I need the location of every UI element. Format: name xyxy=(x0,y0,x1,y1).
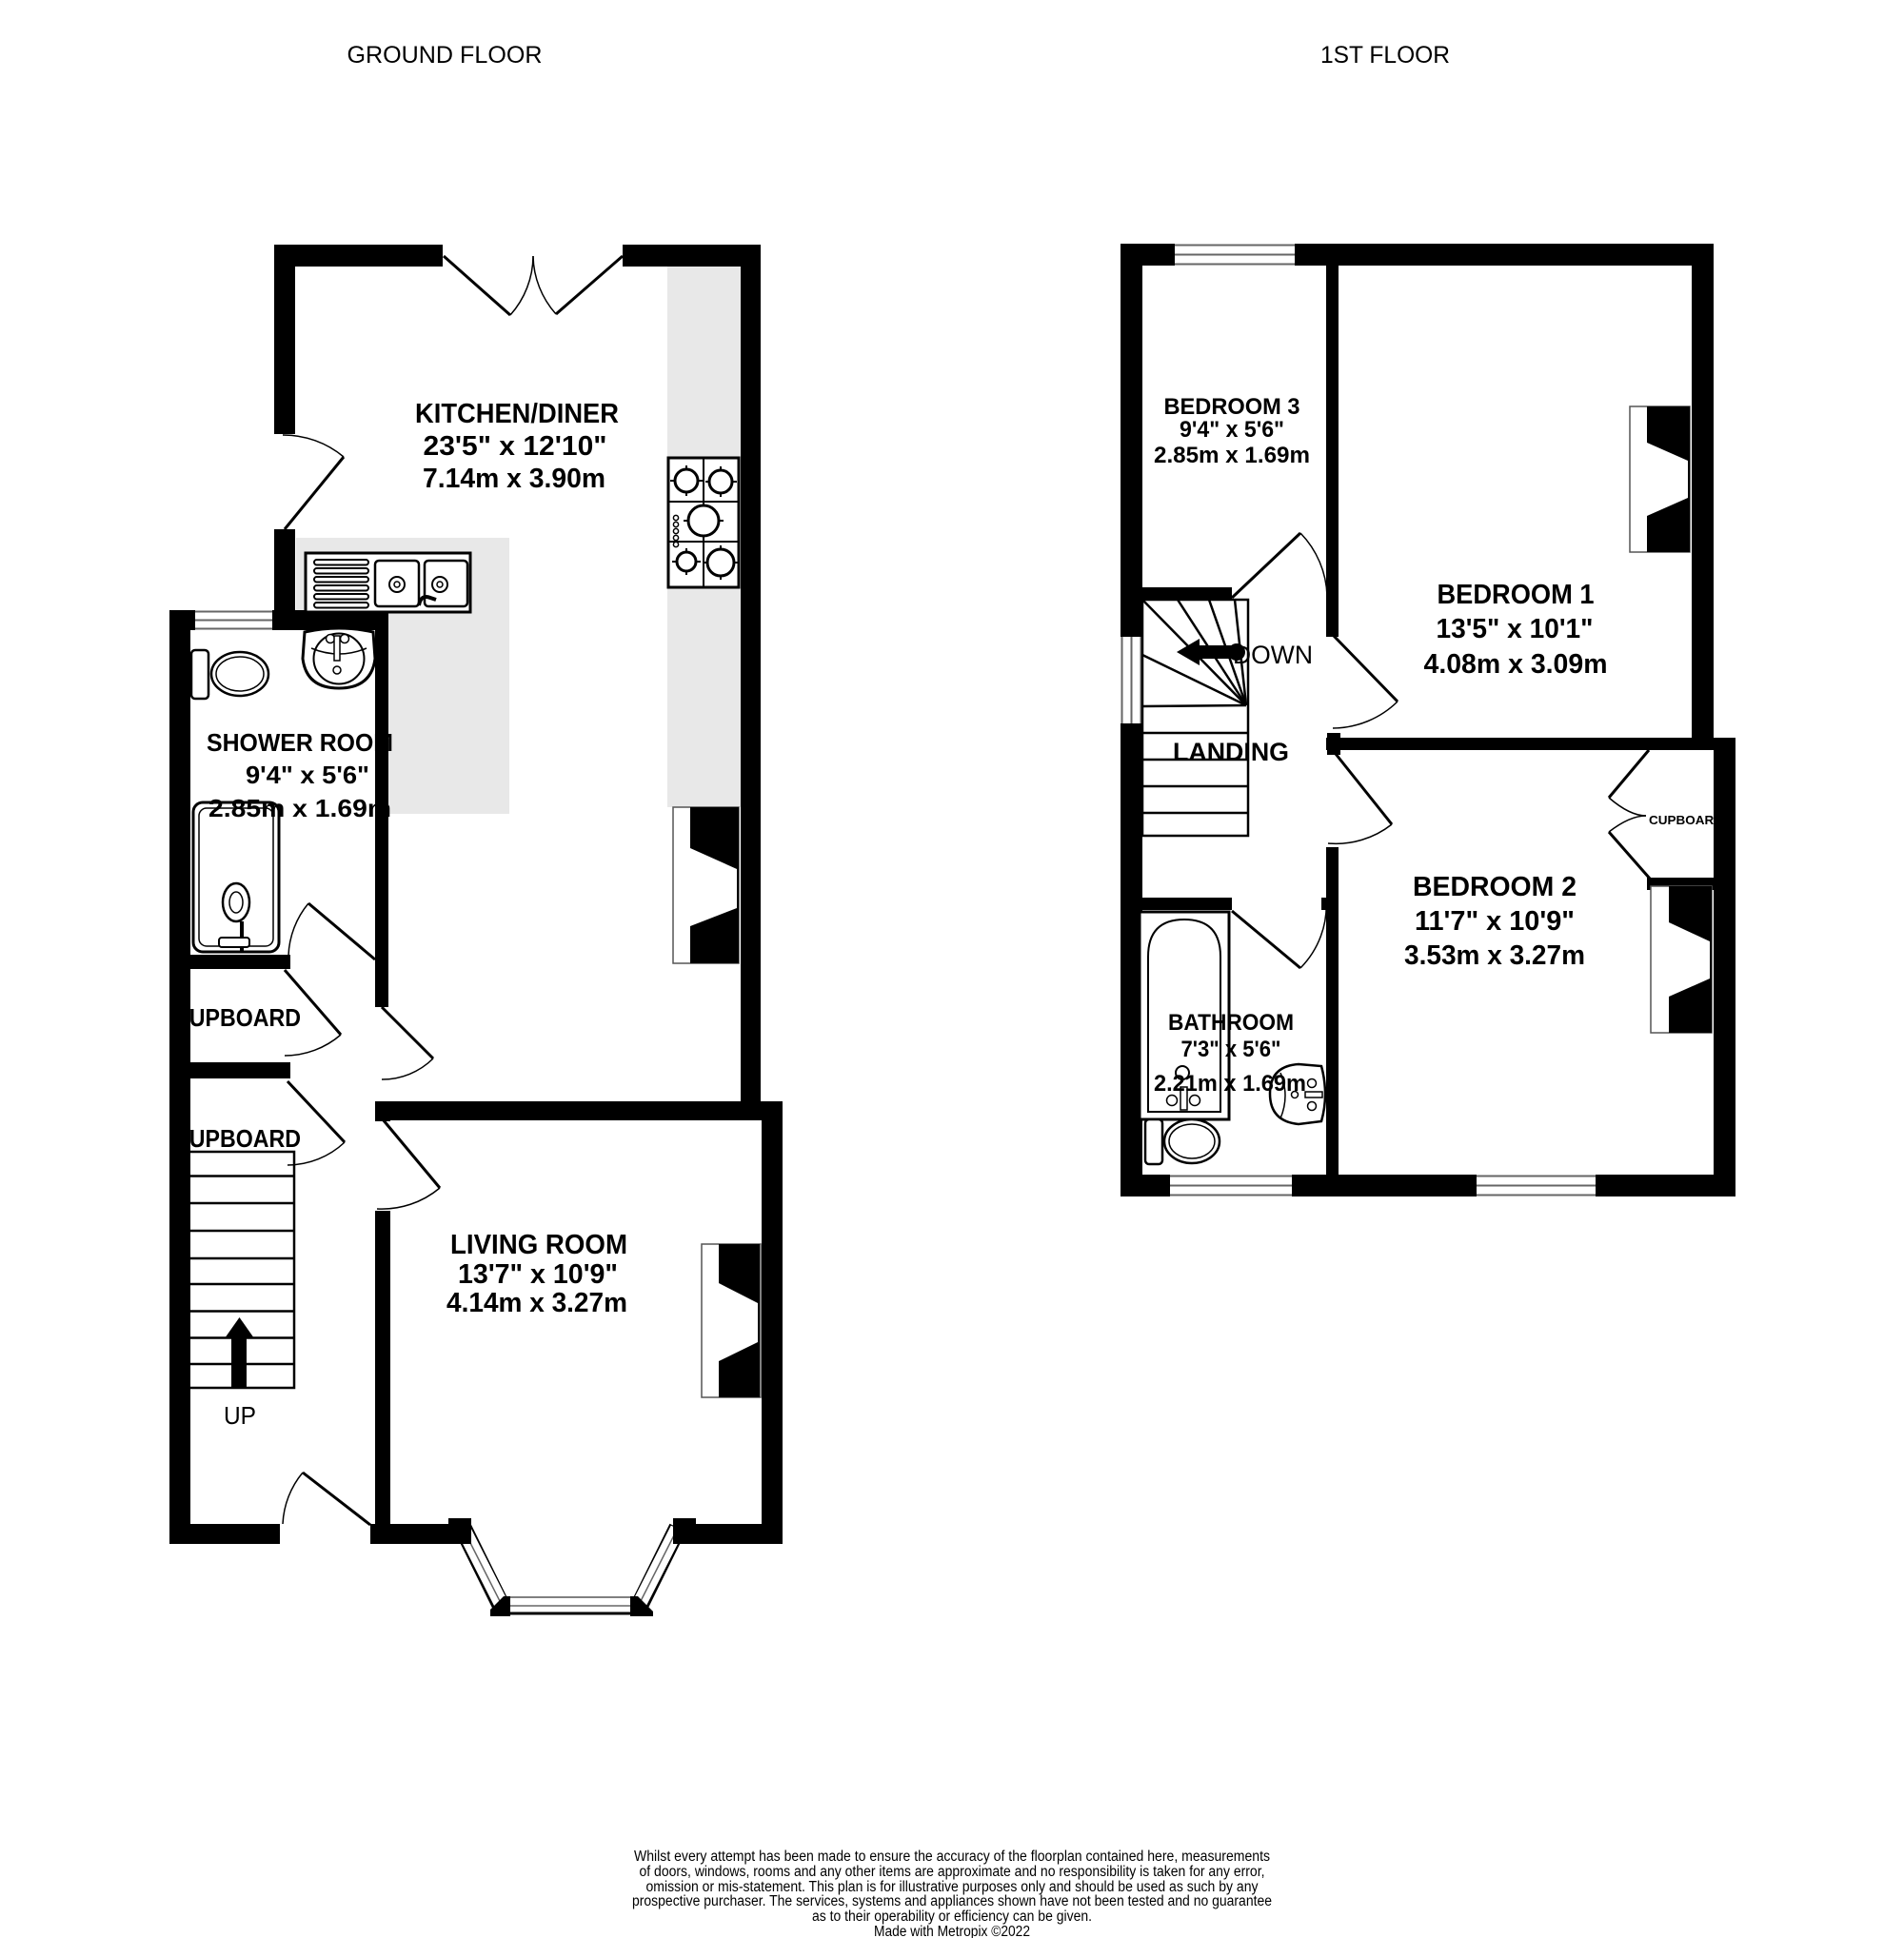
svg-text:2.85m x 1.69m: 2.85m x 1.69m xyxy=(1154,443,1310,468)
svg-text:KITCHEN/DINER: KITCHEN/DINER xyxy=(415,399,619,429)
svg-text:as to their operability or eff: as to their operability or efficiency ca… xyxy=(812,1908,1092,1925)
svg-text:CUPBOARD: CUPBOARD xyxy=(173,1124,301,1153)
svg-text:9'4" x 5'6": 9'4" x 5'6" xyxy=(1180,417,1284,443)
svg-text:GROUND FLOOR: GROUND FLOOR xyxy=(347,42,543,69)
svg-text:prospective purchaser. The ser: prospective purchaser. The services, sys… xyxy=(632,1893,1272,1909)
svg-text:LANDING: LANDING xyxy=(1173,738,1289,766)
svg-text:BEDROOM 3: BEDROOM 3 xyxy=(1164,394,1300,420)
svg-text:BEDROOM 1: BEDROOM 1 xyxy=(1438,580,1595,610)
svg-text:Made with Metropix ©2022: Made with Metropix ©2022 xyxy=(874,1924,1030,1938)
svg-text:BEDROOM 2: BEDROOM 2 xyxy=(1413,872,1577,902)
svg-text:SHOWER ROOM: SHOWER ROOM xyxy=(207,728,393,757)
svg-text:of doors, windows, rooms and a: of doors, windows, rooms and any other i… xyxy=(640,1864,1265,1880)
svg-text:CUPBOARD: CUPBOARD xyxy=(1649,813,1723,827)
svg-text:4.08m x 3.09m: 4.08m x 3.09m xyxy=(1424,649,1608,680)
svg-text:7.14m x 3.90m: 7.14m x 3.90m xyxy=(423,464,605,494)
svg-text:3.53m x 3.27m: 3.53m x 3.27m xyxy=(1404,940,1585,971)
svg-text:BATHROOM: BATHROOM xyxy=(1168,1010,1294,1036)
svg-text:13'5" x 10'1": 13'5" x 10'1" xyxy=(1437,614,1594,644)
svg-text:9'4" x 5'6": 9'4" x 5'6" xyxy=(246,761,369,789)
svg-text:23'5" x 12'10": 23'5" x 12'10" xyxy=(424,431,607,462)
svg-text:2.85m x 1.69m: 2.85m x 1.69m xyxy=(208,794,391,822)
svg-text:DOWN: DOWN xyxy=(1233,641,1313,669)
svg-text:1ST FLOOR: 1ST FLOOR xyxy=(1320,42,1450,69)
svg-text:13'7" x 10'9": 13'7" x 10'9" xyxy=(458,1259,618,1290)
svg-text:2.21m x 1.69m: 2.21m x 1.69m xyxy=(1154,1071,1306,1097)
svg-text:7'3" x 5'6": 7'3" x 5'6" xyxy=(1181,1037,1281,1062)
svg-text:LIVING ROOM: LIVING ROOM xyxy=(450,1230,627,1260)
svg-text:11'7" x 10'9": 11'7" x 10'9" xyxy=(1415,906,1575,937)
svg-text:CUPBOARD: CUPBOARD xyxy=(173,1003,301,1032)
svg-text:Whilst every attempt has been: Whilst every attempt has been made to en… xyxy=(634,1849,1270,1865)
svg-text:4.14m x 3.27m: 4.14m x 3.27m xyxy=(446,1288,627,1318)
svg-text:UP: UP xyxy=(224,1401,256,1430)
